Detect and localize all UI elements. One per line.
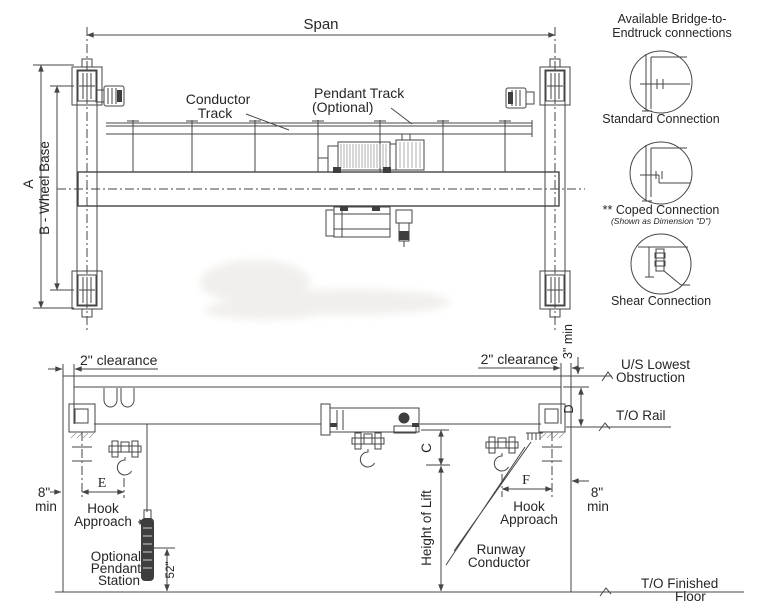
optional-pendant-station-label: Optional Pendant Station (91, 549, 142, 588)
hoist-elevation (321, 404, 419, 435)
coped-connection-label: ** Coped Connection (603, 203, 720, 217)
min-8-left-line2: min (35, 499, 57, 514)
standard-connection-detail: Standard Connection (602, 51, 719, 126)
bridge-girder-plan (57, 172, 585, 206)
min-8-right-line1: 8" (591, 485, 604, 500)
dim-a-label: A (20, 179, 36, 189)
height-of-lift-label: Height of Lift (419, 490, 434, 566)
dim-c-label: C (419, 443, 434, 453)
dimension-c: C (419, 430, 450, 465)
hook-approach-left-label: Hook Approach (74, 501, 146, 529)
connections-title-line2: Endtruck connections (612, 26, 732, 40)
hook-approach-left-line2: Approach (74, 514, 132, 529)
connections-title-line1: Available Bridge-to- (618, 12, 727, 26)
trolley-plan (326, 206, 412, 247)
pendant-label-line3: Station (98, 573, 140, 588)
dim-e-label: E (98, 476, 107, 491)
min-8-left-line1: 8" (38, 485, 51, 500)
connections-panel: Available Bridge-to- Endtruck connection… (602, 12, 731, 308)
floor-reference: T/O Finished Floor (55, 576, 744, 604)
crane-drawing: Span A B - Wheel Base (0, 0, 768, 613)
runway-conductor-bar (526, 433, 543, 440)
pendant-track-label: Pendant Track (Optional) (312, 85, 412, 124)
hoist-drum (338, 142, 390, 170)
center-hook-block (352, 433, 384, 467)
pendant-track-leader (391, 108, 412, 124)
pendant-station (141, 424, 154, 581)
coped-connection-detail: ** Coped Connection (Shown as Dimension … (603, 142, 720, 226)
conductor-track-leader (246, 114, 289, 130)
rail-reference: T/O Rail (566, 408, 671, 431)
conductor-track (106, 120, 532, 172)
shear-connection-detail: Shear Connection (611, 234, 711, 308)
span-dimension: Span (87, 16, 555, 35)
right-drive-motor (506, 88, 534, 108)
festoon-cable (104, 388, 134, 407)
min-8-right-line2: min (587, 499, 609, 514)
pendant-height-label: 52" (165, 562, 177, 579)
dim-f-label: F (522, 473, 530, 488)
dimension-e: E (82, 476, 124, 498)
top-of-rail-label: T/O Rail (616, 408, 666, 423)
min-8-left: 8" min (35, 485, 61, 514)
left-hook-block (109, 441, 141, 475)
shear-connection-label: Shear Connection (611, 294, 711, 308)
dimension-b-wheel-base: B - Wheel Base (37, 86, 74, 290)
pendant-track-label-line2: (Optional) (312, 99, 373, 115)
height-of-lift-dimension: Height of Lift (419, 466, 441, 591)
clearance-right-label: 2" clearance (481, 351, 559, 367)
coped-connection-note: (Shown as Dimension "D") (611, 216, 711, 226)
standard-connection-label: Standard Connection (602, 112, 719, 126)
min-clearance-dimension: 3" min (561, 324, 578, 374)
pendant-height-dimension: 52" (153, 548, 177, 591)
crane-dimension-diagram: Span A B - Wheel Base (0, 0, 768, 613)
wheel-base-label: B - Wheel Base (37, 141, 52, 235)
hoist-plan (318, 134, 424, 173)
span-label: Span (303, 16, 338, 33)
dim-d-label: D (562, 404, 576, 413)
elevation-view: U/S Lowest Obstruction T/O Finished Floo… (35, 324, 744, 604)
scan-watermark (200, 260, 450, 320)
us-lowest-label-line2: Obstruction (616, 370, 685, 385)
conductor-track-label-line2: Track (198, 105, 233, 121)
min-8-right: 8" min (572, 481, 609, 514)
finished-floor-label-line2: Floor (675, 589, 706, 604)
dimension-d: D (562, 387, 589, 426)
clearance-left-label: 2" clearance (80, 352, 158, 368)
min-clearance-label: 3" min (561, 324, 575, 359)
hook-approach-right-line2: Approach (500, 512, 558, 527)
right-hook-block (486, 437, 518, 471)
left-drive-motor (96, 86, 124, 106)
runway-conductor-line2: Conductor (468, 555, 531, 570)
dimension-f: F (502, 473, 552, 497)
left-end-wheel (69, 404, 95, 497)
conductor-track-label: Conductor Track (186, 91, 289, 130)
bridge-girder-elevation (74, 387, 561, 424)
hook-approach-right-label: Hook Approach (500, 499, 558, 527)
clearance-left-dimension: 2" clearance (48, 352, 158, 387)
